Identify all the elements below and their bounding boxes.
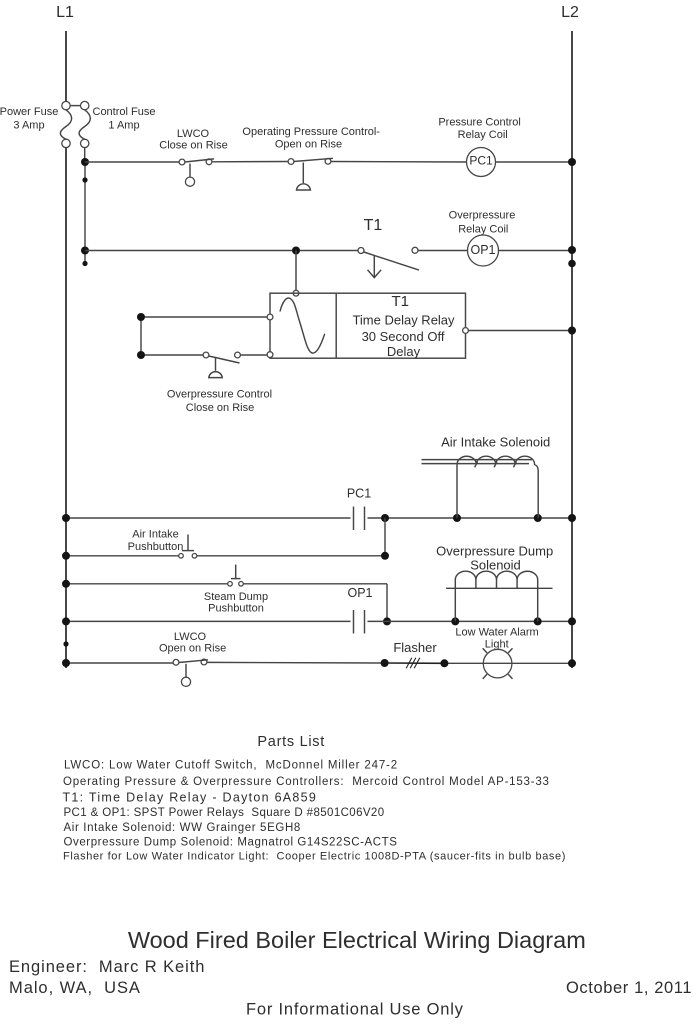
svg-text:T1: T1 [364,217,383,234]
svg-text:LWCO: LWCO [174,631,207,643]
svg-text:Flasher for Low Water Indicato: Flasher for Low Water Indicator Light: C… [63,851,566,863]
svg-text:Air Intake: Air Intake [132,529,178,541]
svg-text:Pushbutton: Pushbutton [128,541,184,553]
svg-text:Time Delay Relay: Time Delay Relay [352,312,455,327]
svg-text:LWCO: Low Water Cutoff Switch,: LWCO: Low Water Cutoff Switch, McDonnel … [64,760,398,772]
svg-text:Overpressure Dump Solenoid: Ma: Overpressure Dump Solenoid: Magnatrol G1… [64,837,398,849]
svg-text:Low Water Alarm: Low Water Alarm [455,627,538,639]
svg-text:For Informational Use Only: For Informational Use Only [246,1001,464,1019]
svg-text:L2: L2 [561,4,579,21]
svg-text:Close on Rise: Close on Rise [159,140,227,152]
svg-text:Operating Pressure Control-: Operating Pressure Control- [242,126,380,138]
svg-text:Pressure Control: Pressure Control [438,117,521,129]
svg-text:T1: Time Delay Relay - Dayton: T1: Time Delay Relay - Dayton 6A859 [63,790,318,804]
svg-text:Overpressure: Overpressure [449,210,516,222]
svg-text:30 Second Off: 30 Second Off [362,329,445,344]
svg-text:T1: T1 [391,293,409,310]
svg-text:October 1, 2011: October 1, 2011 [566,979,692,997]
svg-text:Open on Rise: Open on Rise [159,643,226,655]
svg-text:Pushbutton: Pushbutton [208,603,264,615]
svg-text:Parts List: Parts List [257,734,325,750]
svg-text:LWCO: LWCO [177,128,210,140]
svg-text:PC1: PC1 [347,487,371,501]
svg-text:Engineer: Marc R Keith: Engineer: Marc R Keith [9,958,205,976]
svg-text:3 Amp: 3 Amp [13,120,44,132]
svg-text:Close on Rise: Close on Rise [186,402,254,414]
svg-text:Relay Coil: Relay Coil [458,129,508,141]
svg-text:Steam Dump: Steam Dump [204,591,268,603]
svg-text:Relay Coil: Relay Coil [458,223,508,235]
svg-text:Air Intake Solenoid: WW Graing: Air Intake Solenoid: WW Grainger 5EGH8 [64,822,301,834]
svg-text:Control Fuse: Control Fuse [93,106,156,118]
svg-text:Open on Rise: Open on Rise [275,139,342,151]
svg-text:Power Fuse: Power Fuse [0,106,58,118]
svg-text:OP1: OP1 [347,586,372,600]
svg-text:Air Intake Solenoid: Air Intake Solenoid [441,434,550,449]
svg-text:Overpressure Control: Overpressure Control [167,389,272,401]
svg-text:Wood Fired Boiler Electrical W: Wood Fired Boiler Electrical Wiring Diag… [128,927,586,953]
svg-text:Operating Pressure & Overpress: Operating Pressure & Overpressure Contro… [63,776,550,788]
svg-text:Flasher: Flasher [393,640,437,655]
svg-text:Solenoid: Solenoid [470,558,521,573]
svg-text:L1: L1 [56,4,74,21]
svg-text:PC1 & OP1: SPST Power Relays: PC1 & OP1: SPST Power Relays Square D #8… [64,807,385,819]
svg-text:Overpressure Dump: Overpressure Dump [436,544,553,559]
svg-text:1 Amp: 1 Amp [108,120,139,132]
svg-text:Malo, WA, USA: Malo, WA, USA [9,979,141,997]
svg-text:OP1: OP1 [470,243,495,257]
svg-text:PC1: PC1 [469,154,493,168]
svg-text:Delay: Delay [387,344,421,359]
